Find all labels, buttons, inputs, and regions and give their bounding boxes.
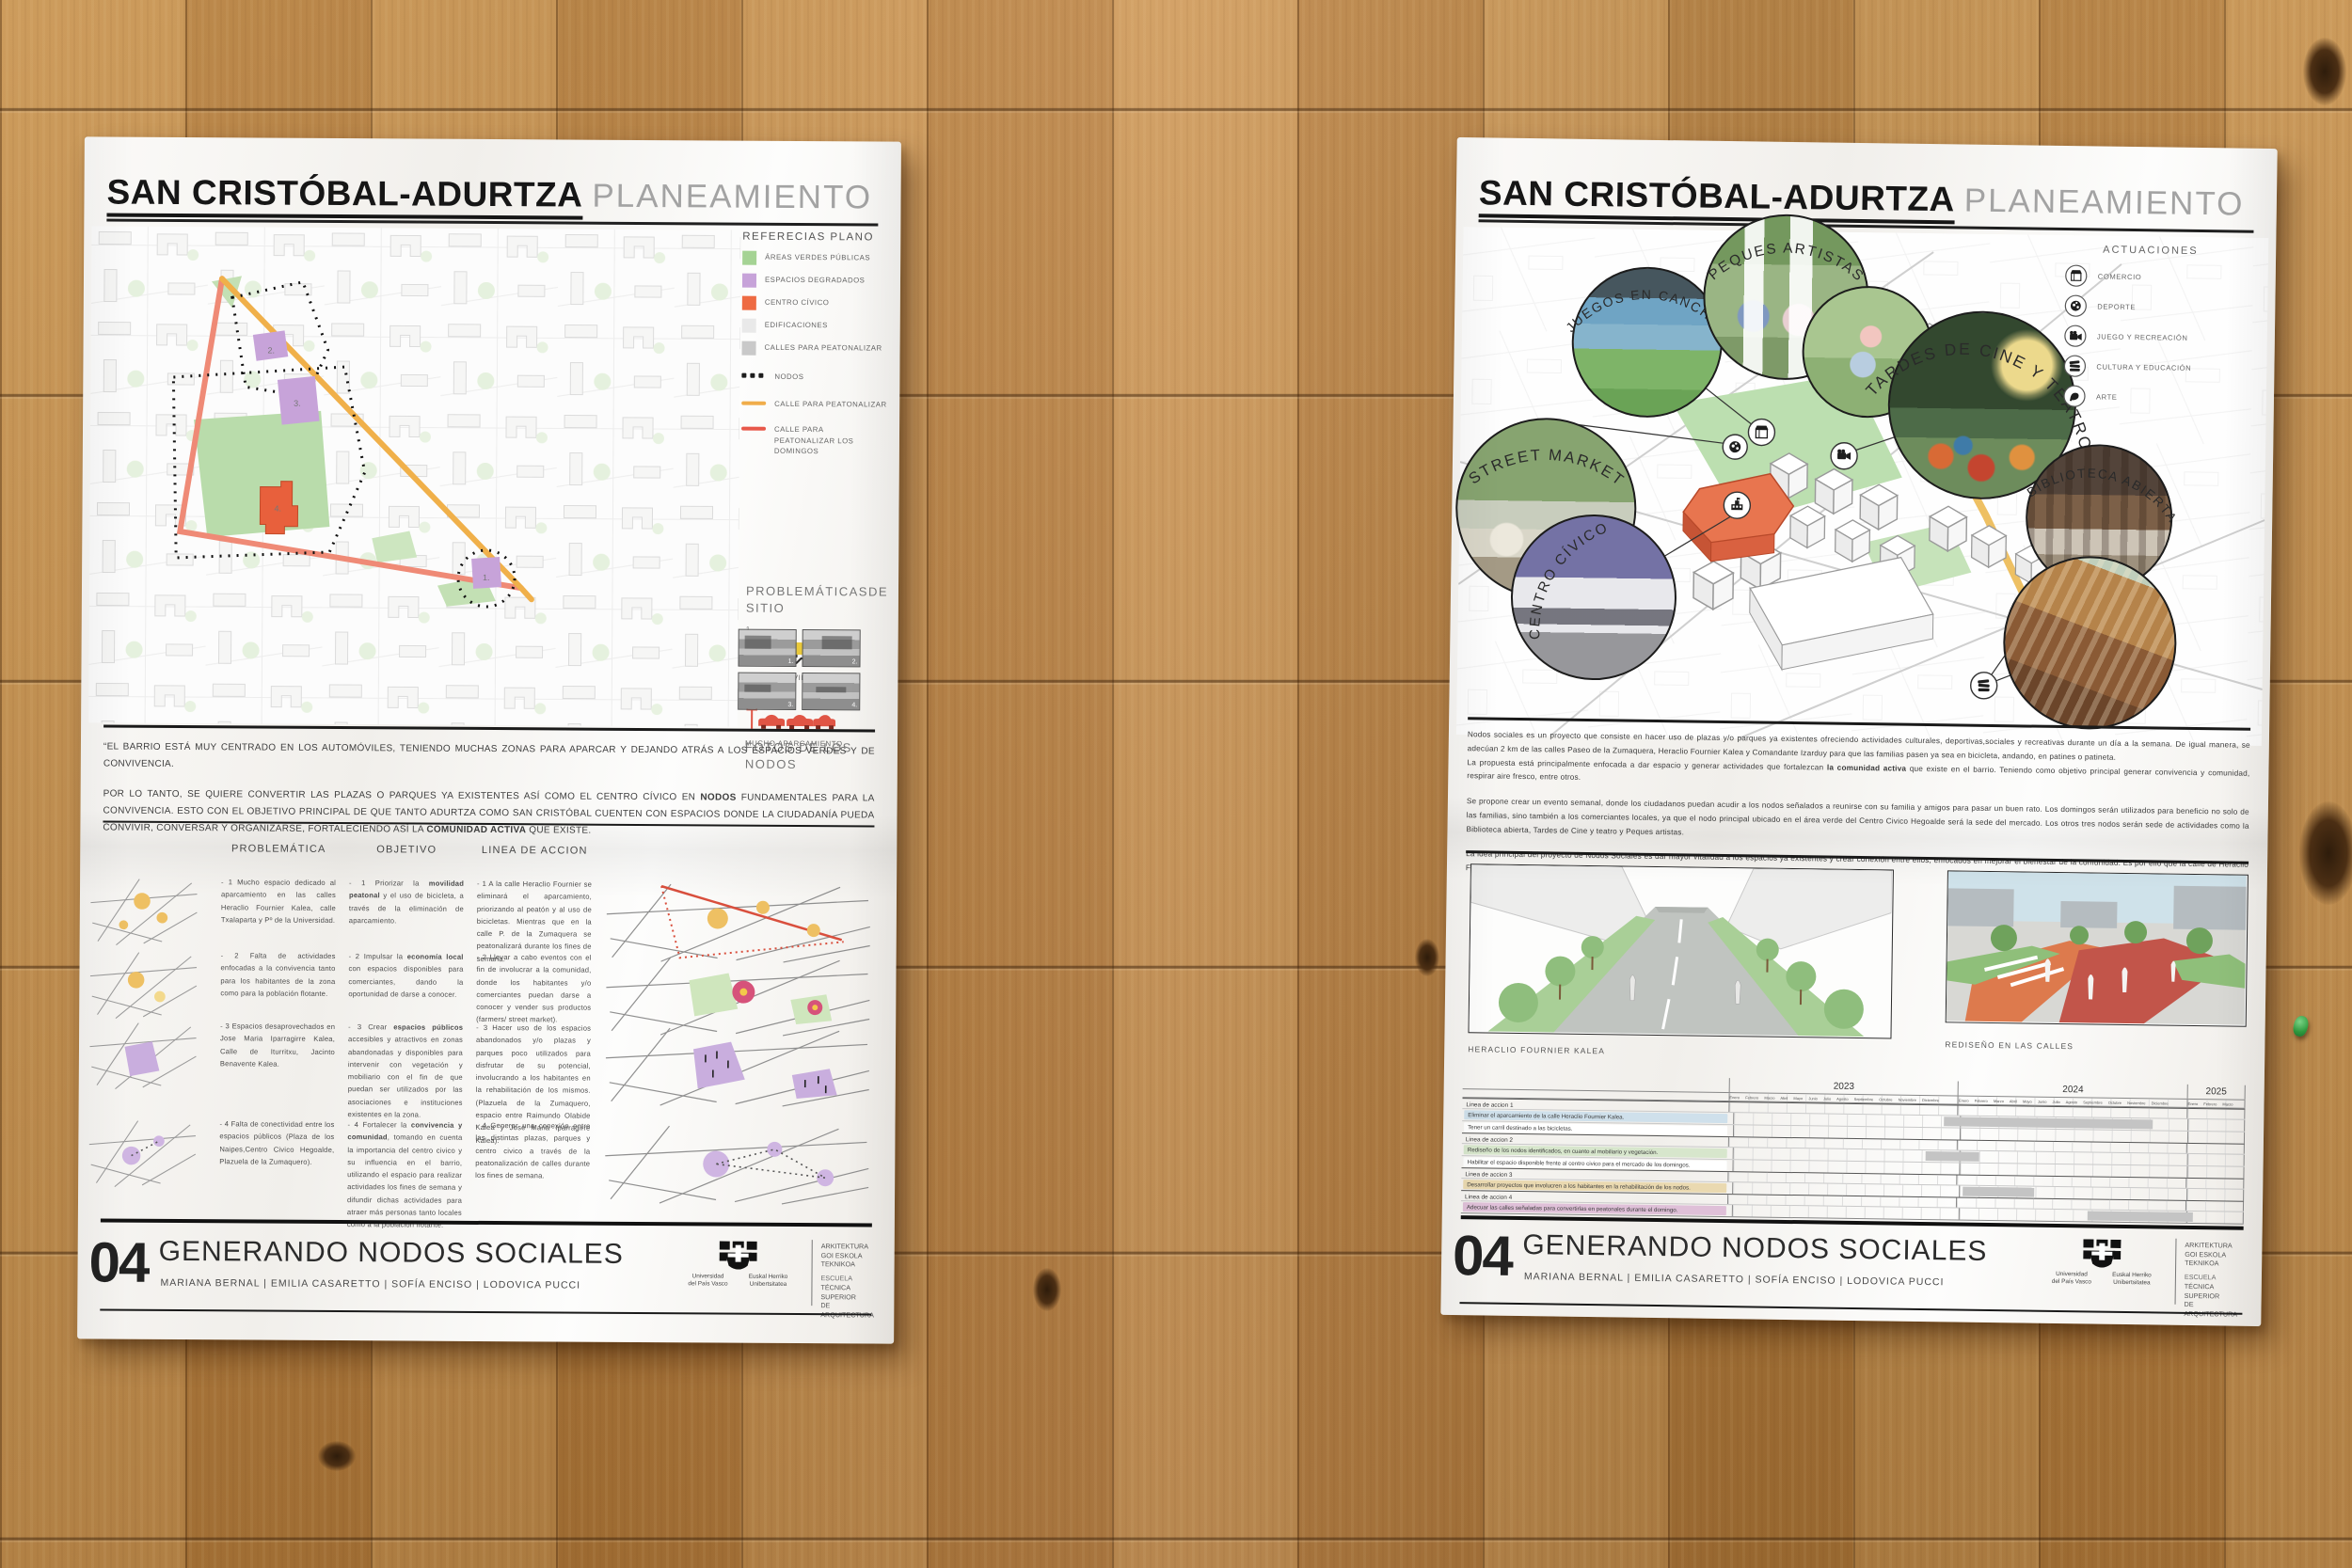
- render-caption: REDISEÑO EN LAS CALLES: [1945, 1039, 2074, 1051]
- cell-problematica: - 1 Mucho espacio dedicado al aparcamien…: [221, 876, 336, 927]
- cell-linea: - 2 Llevar a cabo eventos con el fin de …: [476, 951, 591, 1026]
- storefront-icon: [1748, 419, 1774, 445]
- legend-item: CULTURA Y EDUCACIÓN: [2063, 355, 2259, 380]
- legend-item: COMERCIO: [2065, 264, 2261, 290]
- legend-item: NODOS: [741, 372, 892, 387]
- poster-title: SAN CRISTÓBAL-ADURTZAPLANEAMIENTO ESTRAT…: [106, 173, 878, 227]
- row-sketch-map: [603, 1120, 872, 1207]
- gantt-bar: [2088, 1212, 2192, 1222]
- node-photo: 3.: [738, 673, 796, 710]
- legend-item: ÁREAS VERDES PÚBLICAS: [742, 252, 893, 267]
- col-header-objetivo: OBJETIVO: [349, 844, 464, 856]
- art-icon: [2063, 385, 2086, 407]
- map-number: 2.: [267, 346, 275, 356]
- node-photo: 1.: [738, 629, 796, 667]
- row-sketch-map: [87, 875, 200, 947]
- orange-swatch-icon: [742, 296, 756, 310]
- col-header-linea: LINEA DE ACCION: [477, 845, 592, 857]
- row-sketch-map: [86, 1117, 199, 1189]
- svg-text:PEQUES ARTISTAS: PEQUES ARTISTAS: [1706, 239, 1868, 285]
- row-sketch-map: [604, 1022, 873, 1109]
- legend-item: CENTRO CÍVICO: [742, 297, 893, 312]
- upv-shield-icon: [720, 1242, 757, 1270]
- upv-shield-icon: [2083, 1239, 2121, 1268]
- soccer-ball-icon: [2064, 294, 2087, 317]
- poster-title-light: PLANEAMIENTO ESTRATÉGICO URBANO: [592, 178, 878, 219]
- map-number: 4.: [274, 504, 281, 514]
- table-row: - 3 Espacios desaprovechados en Jose Mar…: [79, 1019, 897, 1119]
- wood-knot: [318, 1441, 356, 1471]
- green-swatch-icon: [742, 251, 756, 265]
- upv-ehu-logo: Universidaddel País Vasco Euskal Herriko…: [681, 1241, 794, 1289]
- wood-knot: [1415, 939, 1439, 976]
- node-photo: 4.: [802, 673, 860, 710]
- project-title: GENERANDO NODOS SOCIALES: [159, 1236, 624, 1271]
- cell-linea: - 4 Generar una conexión entre las disti…: [475, 1119, 590, 1182]
- cell-problematica: - 2 Falta de actividades enfocadas a la …: [220, 949, 335, 1000]
- footer-divider: [811, 1240, 812, 1306]
- legend-item: CALLE PARA PEATONALIZAR: [741, 399, 892, 414]
- logo-text: Euskal HerrikoUnibertsitatea: [2106, 1272, 2158, 1288]
- legend-title: REFERECIAS PLANO: [742, 231, 893, 244]
- wood-knot: [2303, 38, 2346, 105]
- action-timeline: 2023 2024 2025 Enero Febrero Marzo Abril…: [1461, 1074, 2246, 1221]
- board-number: 04: [1453, 1223, 1513, 1289]
- storefront-icon: [2065, 264, 2088, 287]
- wood-knot: [1033, 1268, 1061, 1311]
- biblioteca-photo-2: [2002, 555, 2178, 731]
- upv-ehu-logo: Universidaddel País Vasco Euskal Herriko…: [2045, 1239, 2159, 1288]
- street-render: [1468, 863, 1893, 1038]
- school-name: ARKITEKTURAGOI ESKOLATEKNIKOA ESCUELATÉC…: [2184, 1241, 2239, 1320]
- cell-problematica: - 3 Espacios desaprovechados en Jose Mar…: [220, 1020, 335, 1070]
- intro-text: “EL BARRIO ESTÁ MUY CENTRADO EN LOS AUTO…: [103, 738, 875, 854]
- purple-swatch-icon: [742, 274, 756, 288]
- table-row: - 2 Falta de actividades enfocadas a la …: [79, 948, 896, 1022]
- poster-title-light: PLANEAMIENTO ESTRATÉGICO URBANO: [1963, 182, 2254, 230]
- intro-paragraph-2: POR LO TANTO, SE QUIERE CONVERTIR LAS PL…: [103, 785, 874, 841]
- row-sketch-map: [87, 1019, 199, 1091]
- books-icon: [2063, 355, 2086, 377]
- cell-problematica: - 4 Falta de conectividad entre los espa…: [219, 1117, 334, 1168]
- legend-item: JUEGO Y RECREACIÓN: [2064, 325, 2260, 350]
- movie-camera-icon: [2064, 325, 2087, 347]
- description-paragraph-2: Se propone crear un evento semanal, dond…: [1466, 795, 2249, 847]
- poster-title-bold: SAN CRISTÓBAL-ADURTZA: [106, 173, 582, 220]
- site-plan-map: 2. 3. 1. 4.: [88, 226, 740, 726]
- books-icon: [1971, 673, 1997, 699]
- poster-footer: 04 GENERANDO NODOS SOCIALES MARIANA BERN…: [1463, 1228, 2239, 1314]
- svg-text:BIBLIOTECA ABIERTA: BIBLIOTECA ABIERTA: [2023, 453, 2186, 528]
- logo-text: Euskal HerrikoUnibertsitatea: [741, 1274, 794, 1290]
- problematicas-title: PROBLEMÁTICASDE SITIO: [746, 583, 887, 618]
- red-line-icon: [741, 427, 766, 431]
- render-caption: HERACLIO FOURNIER KALEA: [1468, 1044, 1605, 1055]
- logo-text: Universidaddel País Vasco: [681, 1273, 734, 1289]
- authors: MARIANA BERNAL | EMILIA CASARETTO | SOFÍ…: [1524, 1271, 1945, 1288]
- legend-item: ESPACIOS DEGRADADOS: [742, 275, 893, 290]
- school-name: ARKITEKTURAGOI ESKOLATEKNIKOA ESCUELATÉC…: [820, 1242, 874, 1320]
- fotos-nodos-grid: 1. 2. 3. 4.: [738, 629, 865, 711]
- table-row: - 4 Falta de conectividad entre los espa…: [78, 1117, 896, 1221]
- map-legend: REFERECIAS PLANO ÁREAS VERDES PÚBLICAS E…: [741, 231, 894, 467]
- legend-item: EDIFICACIONES: [742, 320, 893, 335]
- legend-item: DEPORTE: [2064, 294, 2260, 320]
- map-number: 3.: [294, 399, 301, 408]
- gray-swatch-icon: [742, 341, 756, 356]
- cell-objetivo: - 1 Priorizar la movilidad peatonal y el…: [349, 877, 464, 927]
- cell-objetivo: - 4 Fortalecer la convivencia y comunida…: [347, 1118, 463, 1231]
- logo-text: Universidaddel País Vasco: [2045, 1271, 2098, 1287]
- legend-item: ARTE: [2063, 385, 2259, 410]
- actuaciones-title: ACTUACIONES: [2103, 245, 2261, 258]
- green-pin: [2292, 1015, 2311, 1038]
- cell-objetivo: - 2 Impulsar la economía local con espac…: [348, 950, 463, 1001]
- svg-text:CENTRO CÍVICO: CENTRO CÍVICO: [1507, 506, 1616, 646]
- gantt-bar: [1963, 1187, 2035, 1197]
- school-icon: [1724, 492, 1750, 518]
- legend-item: CALLE PARA PEATONALIZAR LOS DOMINGOS: [741, 424, 892, 458]
- row-sketch-map: [87, 948, 199, 1021]
- gantt-bar: [1925, 1151, 1979, 1161]
- table-row: - 1 Mucho espacio dedicado al aparcamien…: [80, 875, 897, 951]
- project-title: GENERANDO NODOS SOCIALES: [1522, 1229, 1988, 1268]
- lightgray-swatch-icon: [742, 319, 756, 333]
- year-2025: 2025: [2188, 1085, 2246, 1100]
- legend-item: CALLES PARA PEATONALIZAR: [741, 342, 892, 357]
- orange-line-icon: [741, 402, 766, 405]
- nodos-dots-icon: [741, 373, 766, 378]
- plaza-render-image: [1947, 871, 2247, 1024]
- map-number: 1.: [483, 573, 490, 582]
- node-photo-biblioteca-2: [2002, 555, 2178, 731]
- node-photo-centro-civico: CENTRO CÍVICO: [1510, 514, 1677, 681]
- plaza-render: [1946, 870, 2249, 1026]
- node-photo: 2.: [802, 629, 860, 667]
- intro-paragraph-1: “EL BARRIO ESTÁ MUY CENTRADO EN LOS AUTO…: [103, 738, 875, 777]
- poster-right: SAN CRISTÓBAL-ADURTZAPLANEAMIENTO ESTRAT…: [1440, 137, 2277, 1326]
- wood-wall: SAN CRISTÓBAL-ADURTZAPLANEAMIENTO ESTRAT…: [0, 0, 2352, 1568]
- board-number: 04: [88, 1229, 148, 1294]
- col-header-problematica: PROBLEMÁTICA: [221, 843, 336, 855]
- poster-footer: 04 GENERANDO NODOS SOCIALES MARIANA BERN…: [100, 1235, 871, 1315]
- authors: MARIANA BERNAL | EMILIA CASARETTO | SOFÍ…: [160, 1277, 580, 1291]
- actuaciones-legend: ACTUACIONES COMERCIO DEPORTE JUEGO Y REC…: [2063, 244, 2262, 418]
- description-paragraph-1: Nodos sociales es un proyecto que consis…: [1467, 728, 2250, 795]
- cell-objetivo: - 3 Crear espacios públicos accesibles y…: [348, 1021, 464, 1121]
- footer-divider: [2175, 1239, 2177, 1305]
- poster-left: SAN CRISTÓBAL-ADURTZAPLANEAMIENTO ESTRAT…: [77, 136, 901, 1343]
- wood-knot: [2299, 801, 2352, 905]
- street-render-image: [1470, 864, 1892, 1037]
